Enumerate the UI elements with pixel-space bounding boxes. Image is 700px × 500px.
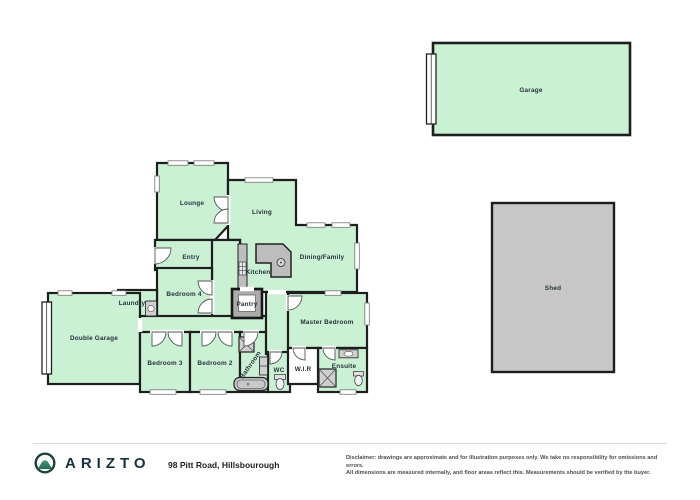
floor-plan: Lounge Living Entry Kitchen Dining/Famil… bbox=[0, 0, 700, 443]
label-entry: Entry bbox=[182, 254, 200, 261]
ensuite-vanity bbox=[339, 350, 358, 358]
label-bedroom2: Bedroom 2 bbox=[197, 360, 232, 367]
disclaimer-line1: Disclaimer: drawings are approximate and… bbox=[346, 455, 666, 470]
bathtub bbox=[234, 378, 268, 391]
label-double-garage: Double Garage bbox=[70, 335, 118, 342]
label-kitchen: Kitchen bbox=[246, 269, 271, 276]
ensuite-toilet bbox=[354, 372, 364, 386]
label-wc: WC bbox=[273, 367, 284, 374]
label-living: Living bbox=[252, 209, 272, 216]
footer-divider bbox=[33, 443, 667, 444]
kitchen-counter bbox=[238, 244, 247, 290]
garage-door-main bbox=[42, 302, 52, 374]
label-shed: Shed bbox=[545, 285, 561, 292]
label-laundry: Laundry bbox=[119, 300, 146, 307]
label-master-bedroom: Master Bedroom bbox=[300, 319, 353, 326]
arizto-logo-icon bbox=[34, 452, 56, 474]
laundry-tub bbox=[146, 301, 157, 316]
bathroom-vanity bbox=[260, 357, 268, 375]
label-garage: Garage bbox=[519, 87, 542, 94]
label-bedroom4: Bedroom 4 bbox=[166, 291, 201, 298]
label-dining: Dining/Family bbox=[300, 254, 345, 261]
label-pantry: Pantry bbox=[236, 301, 257, 308]
brand-name: ARIZTO bbox=[65, 455, 151, 472]
label-wir: W.I.R bbox=[295, 366, 312, 373]
ensuite-shower bbox=[319, 369, 336, 387]
disclaimer-line2: All dimensions are measured internally, … bbox=[346, 470, 666, 478]
garage-door-detached bbox=[427, 54, 437, 124]
property-address: 98 Pitt Road, Hillsbourough bbox=[168, 460, 279, 470]
brand-row: ARIZTO bbox=[34, 452, 151, 474]
label-bedroom3: Bedroom 3 bbox=[147, 360, 182, 367]
disclaimer-text: Disclaimer: drawings are approximate and… bbox=[346, 455, 666, 478]
label-ensuite: Ensuite bbox=[332, 363, 357, 370]
label-lounge: Lounge bbox=[180, 200, 205, 207]
